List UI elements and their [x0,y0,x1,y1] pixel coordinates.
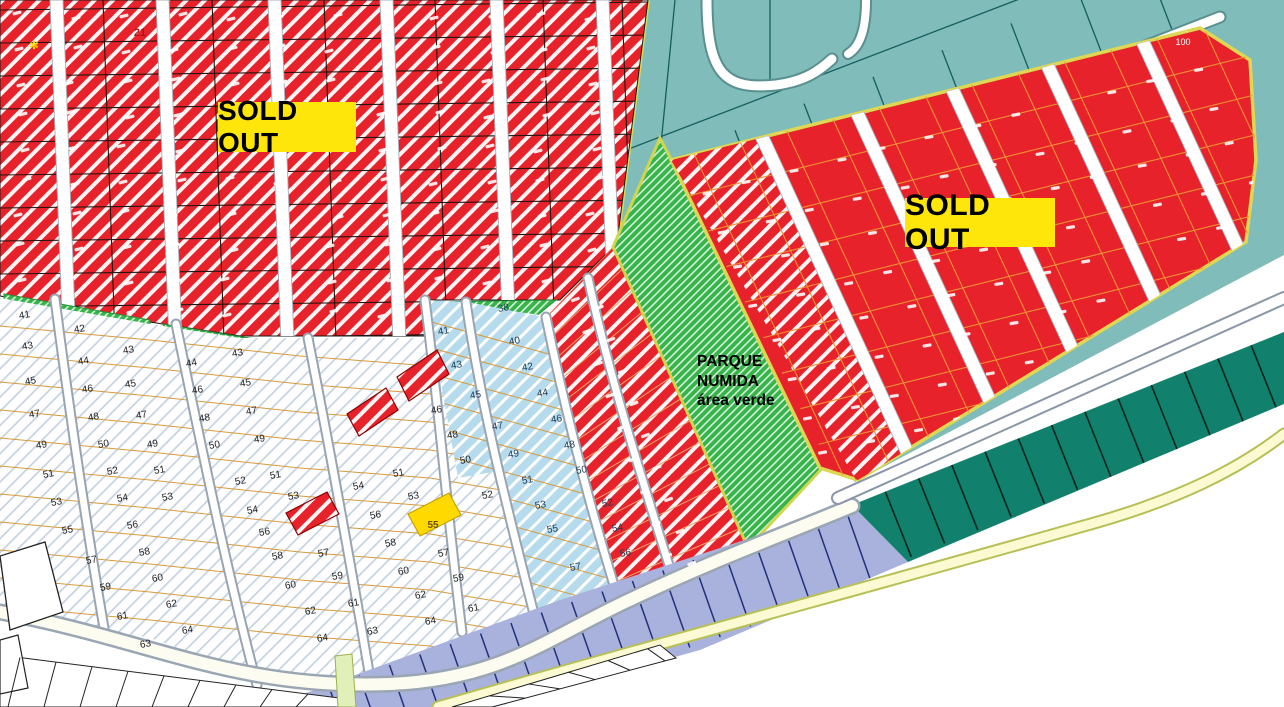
lot-number-special: 21 [134,27,146,39]
lot-number-special: 55 [427,520,439,531]
sold-out-text-east: SOLD OUT [905,189,1055,257]
parque-numida-label: PARQUE NUMIDA área verde [697,352,775,411]
lot-number-special: ✻ [29,40,38,52]
lot-number-special: 100 [1175,37,1190,47]
sold-out-label-east: SOLD OUT [905,198,1055,247]
green-street-stub[interactable] [335,654,356,707]
parque-line-2: NUMIDA [697,372,775,392]
subdivision-map: 4143454749515355424446485052545658606264… [0,0,1284,707]
lot-number: 63 [139,638,152,651]
parque-line-3: área verde [697,391,775,411]
sold-out-label-west: SOLD OUT [218,102,356,152]
map-canvas: 4143454749515355424446485052545658606264… [0,0,1284,707]
sold-out-text-west: SOLD OUT [218,95,356,159]
parque-line-1: PARQUE [697,352,775,372]
